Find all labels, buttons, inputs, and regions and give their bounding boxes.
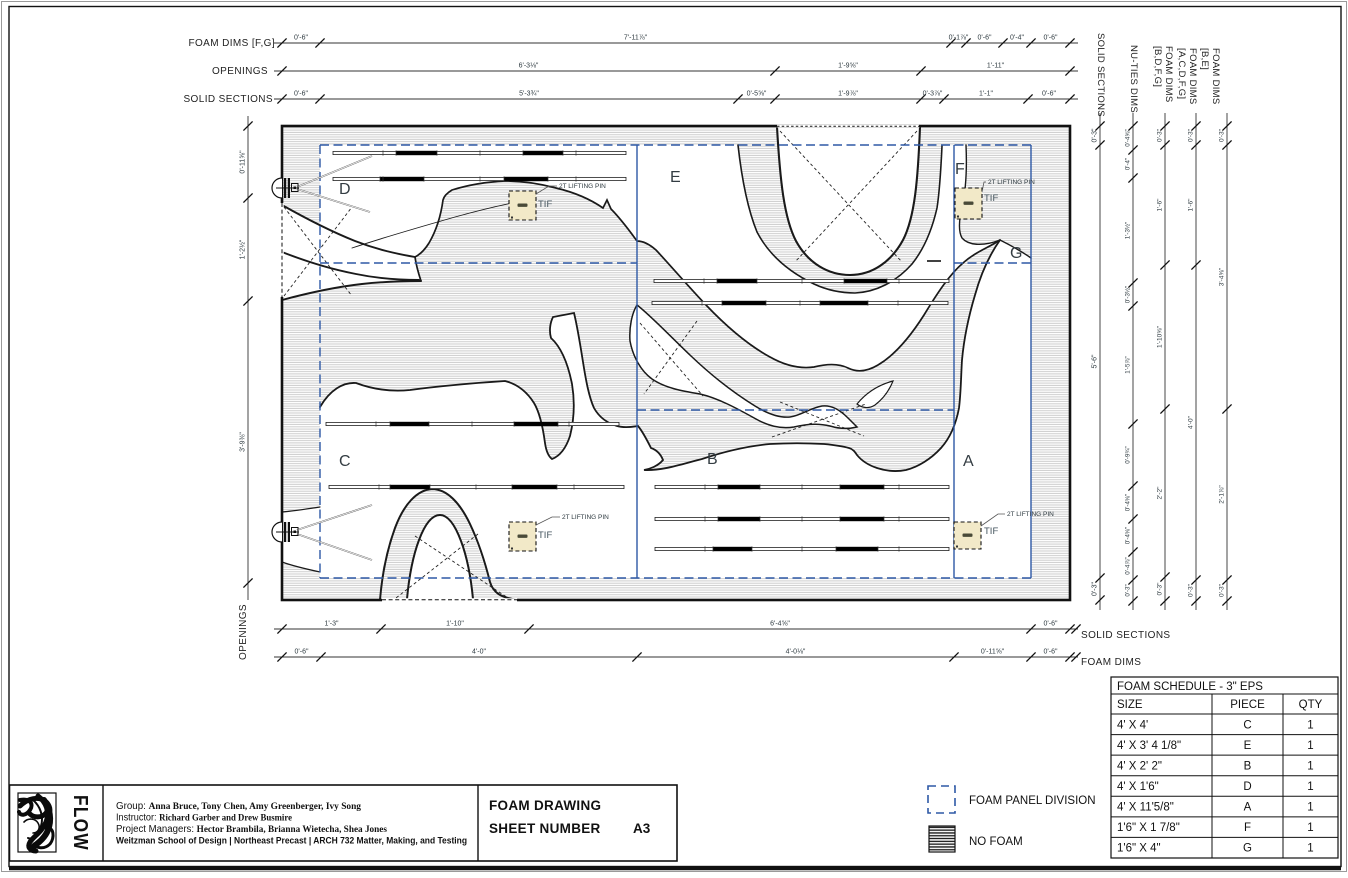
svg-text:Instructor: Richard Garber and: Instructor: Richard Garber and Drew Busm… <box>116 813 293 824</box>
svg-text:NU-TIES DIMS: NU-TIES DIMS <box>1128 45 1139 113</box>
svg-text:SOLID SECTIONS: SOLID SECTIONS <box>1081 630 1171 641</box>
svg-text:0'-3": 0'-3" <box>1125 584 1132 596</box>
svg-text:4'-0⅛": 4'-0⅛" <box>786 649 806 656</box>
svg-text:1: 1 <box>1307 781 1313 793</box>
svg-text:0'-3": 0'-3" <box>1188 128 1195 142</box>
svg-text:1'-11": 1'-11" <box>987 63 1005 70</box>
svg-text:FOAM DIMS: FOAM DIMS <box>1081 657 1141 668</box>
svg-text:0'-6": 0'-6" <box>1044 621 1058 628</box>
svg-text:1'-6": 1'-6" <box>1157 198 1164 212</box>
svg-text:0'-4⅝": 0'-4⅝" <box>1125 494 1132 511</box>
svg-text:0'-3": 0'-3" <box>1092 582 1099 596</box>
svg-text:0'-6": 0'-6" <box>1044 649 1058 656</box>
svg-text:D: D <box>1243 781 1251 793</box>
svg-text:FOAM PANEL DIVISION: FOAM PANEL DIVISION <box>969 795 1096 807</box>
svg-text:1: 1 <box>1307 822 1313 834</box>
svg-text:0'-1⅞": 0'-1⅞" <box>949 35 969 42</box>
svg-text:SOLID SECTIONS: SOLID SECTIONS <box>183 94 273 105</box>
svg-text:4'-0": 4'-0" <box>472 649 486 656</box>
svg-text:0'-6": 0'-6" <box>295 649 309 656</box>
svg-text:1: 1 <box>1307 802 1313 814</box>
svg-text:Project Managers: Hector Bramb: Project Managers: Hector Brambila, Brian… <box>116 824 387 835</box>
svg-text:1: 1 <box>1307 760 1313 772</box>
svg-text:TIF: TIF <box>984 193 998 204</box>
svg-text:OPENINGS: OPENINGS <box>238 604 249 660</box>
svg-text:SIZE: SIZE <box>1117 699 1143 711</box>
svg-text:1'-9⅝": 1'-9⅝" <box>838 63 858 70</box>
svg-text:4' X 3' 4 1/8": 4' X 3' 4 1/8" <box>1117 740 1181 752</box>
svg-text:NO FOAM: NO FOAM <box>969 836 1023 848</box>
svg-text:SHEET NUMBER: SHEET NUMBER <box>489 821 601 836</box>
svg-text:[B,E]: [B,E] <box>1199 48 1210 70</box>
svg-text:2T LIFTING PIN: 2T LIFTING PIN <box>559 183 606 190</box>
svg-text:F: F <box>955 161 965 178</box>
svg-text:0'-4⅝": 0'-4⅝" <box>1125 129 1132 146</box>
svg-text:0'-3": 0'-3" <box>1157 128 1164 142</box>
svg-text:B: B <box>707 451 718 468</box>
svg-text:FOAM DRAWING: FOAM DRAWING <box>489 798 601 813</box>
svg-text:1: 1 <box>1307 843 1313 855</box>
svg-text:FOAM DIMS: FOAM DIMS <box>1210 48 1221 105</box>
svg-text:4' X 4': 4' X 4' <box>1117 719 1148 731</box>
svg-text:E: E <box>1244 740 1252 752</box>
svg-text:1'-1": 1'-1" <box>979 91 993 98</box>
svg-text:1'-3½": 1'-3½" <box>1125 222 1132 239</box>
svg-text:2T LIFTING PIN: 2T LIFTING PIN <box>562 514 609 521</box>
svg-text:5'-3¾": 5'-3¾" <box>519 91 539 98</box>
svg-text:0'-4⅞": 0'-4⅞" <box>1125 557 1132 574</box>
svg-text:QTY: QTY <box>1299 699 1323 711</box>
svg-text:[B,D,F,G]: [B,D,F,G] <box>1152 46 1163 87</box>
svg-text:C: C <box>1243 719 1251 731</box>
svg-text:0'-6": 0'-6" <box>1044 35 1058 42</box>
svg-text:3'-4⅝": 3'-4⅝" <box>1219 267 1226 286</box>
svg-text:FOAM SCHEDULE - 3" EPS: FOAM SCHEDULE - 3" EPS <box>1117 681 1263 693</box>
svg-text:1'-3": 1'-3" <box>325 621 339 628</box>
svg-text:FLOW: FLOW <box>69 795 91 851</box>
svg-text:0'-3": 0'-3" <box>1157 582 1164 596</box>
svg-text:1'-10⅝": 1'-10⅝" <box>1157 325 1164 348</box>
svg-text:B: B <box>1244 760 1252 772</box>
svg-text:0'-3⅞": 0'-3⅞" <box>923 91 943 98</box>
svg-text:A: A <box>963 453 974 470</box>
svg-text:4' X 11'5/8": 4' X 11'5/8" <box>1117 802 1174 814</box>
svg-text:0'-4": 0'-4" <box>1010 35 1024 42</box>
svg-text:Weitzman School of Design | No: Weitzman School of Design | Northeast Pr… <box>116 836 467 847</box>
svg-text:G: G <box>1010 245 1022 262</box>
svg-text:0'-3½": 0'-3½" <box>1125 286 1132 303</box>
svg-text:A3: A3 <box>633 821 651 836</box>
svg-text:PIECE: PIECE <box>1230 699 1265 711</box>
svg-text:FOAM DIMS: FOAM DIMS <box>1163 46 1174 103</box>
svg-text:Group: Anna Bruce, Tony Chen,: Group: Anna Bruce, Tony Chen, Amy Greenb… <box>116 801 361 812</box>
svg-text:0'-3": 0'-3" <box>1219 583 1226 597</box>
svg-text:1: 1 <box>1307 719 1313 731</box>
svg-text:D: D <box>339 181 351 198</box>
svg-text:G: G <box>1243 843 1252 855</box>
svg-text:2'-1⅞": 2'-1⅞" <box>1219 485 1226 504</box>
svg-text:0'-3": 0'-3" <box>1219 128 1226 142</box>
svg-text:1'6" X 1 7/8": 1'6" X 1 7/8" <box>1117 822 1180 834</box>
svg-text:0'-6": 0'-6" <box>294 91 308 98</box>
svg-text:0'-11⅝": 0'-11⅝" <box>981 649 1005 656</box>
svg-text:[A,C,D,F,G]: [A,C,D,F,G] <box>1176 48 1187 99</box>
svg-text:0'-6": 0'-6" <box>978 35 992 42</box>
svg-text:E: E <box>670 169 681 186</box>
svg-text:TIF: TIF <box>984 526 998 537</box>
svg-text:0'-4⅝": 0'-4⅝" <box>1125 527 1132 544</box>
svg-text:0'-6": 0'-6" <box>1042 91 1056 98</box>
svg-text:TIF: TIF <box>538 199 552 210</box>
svg-text:TIF: TIF <box>538 530 552 541</box>
svg-text:1'-2½": 1'-2½" <box>239 239 247 259</box>
svg-text:2T LIFTING PIN: 2T LIFTING PIN <box>1007 511 1054 518</box>
svg-text:1'-10": 1'-10" <box>446 621 464 628</box>
svg-text:0'-3": 0'-3" <box>1188 583 1195 597</box>
svg-text:0'-11⅝": 0'-11⅝" <box>240 150 247 174</box>
svg-text:6'-4⅝": 6'-4⅝" <box>770 621 790 628</box>
svg-text:OPENINGS: OPENINGS <box>212 66 268 77</box>
svg-text:3'-9⅜": 3'-9⅜" <box>240 432 247 452</box>
svg-text:SOLID SECTIONS: SOLID SECTIONS <box>1095 33 1106 117</box>
svg-text:0'-3": 0'-3" <box>1092 128 1099 142</box>
svg-text:2T LIFTING PIN: 2T LIFTING PIN <box>988 179 1035 186</box>
svg-text:5'-6": 5'-6" <box>1092 354 1099 368</box>
svg-text:0'-6": 0'-6" <box>294 35 308 42</box>
svg-text:0'-5⅝": 0'-5⅝" <box>747 91 767 98</box>
svg-text:F: F <box>1244 822 1251 834</box>
svg-text:A: A <box>1244 802 1252 814</box>
svg-text:1'-5⅞": 1'-5⅞" <box>1125 356 1132 373</box>
svg-text:1'-6": 1'-6" <box>1188 198 1195 212</box>
svg-text:0'-9¾": 0'-9¾" <box>1125 446 1132 463</box>
svg-text:FOAM DIMS: FOAM DIMS <box>1187 48 1198 105</box>
svg-text:4'-0": 4'-0" <box>1188 415 1195 429</box>
svg-text:1: 1 <box>1307 740 1313 752</box>
svg-text:1'-9⅞": 1'-9⅞" <box>838 91 858 98</box>
svg-text:7'-11⅞": 7'-11⅞" <box>624 35 648 42</box>
svg-text:6'-3⅛": 6'-3⅛" <box>519 63 539 70</box>
svg-text:2'-2": 2'-2" <box>1157 486 1164 500</box>
svg-text:1'6" X 4": 1'6" X 4" <box>1117 843 1161 855</box>
svg-text:4' X 1'6": 4' X 1'6" <box>1117 781 1159 793</box>
svg-text:4' X 2' 2": 4' X 2' 2" <box>1117 760 1162 772</box>
svg-text:C: C <box>339 453 351 470</box>
svg-text:0'-4": 0'-4" <box>1125 158 1132 170</box>
svg-text:FOAM DIMS [F,G]: FOAM DIMS [F,G] <box>188 38 275 49</box>
